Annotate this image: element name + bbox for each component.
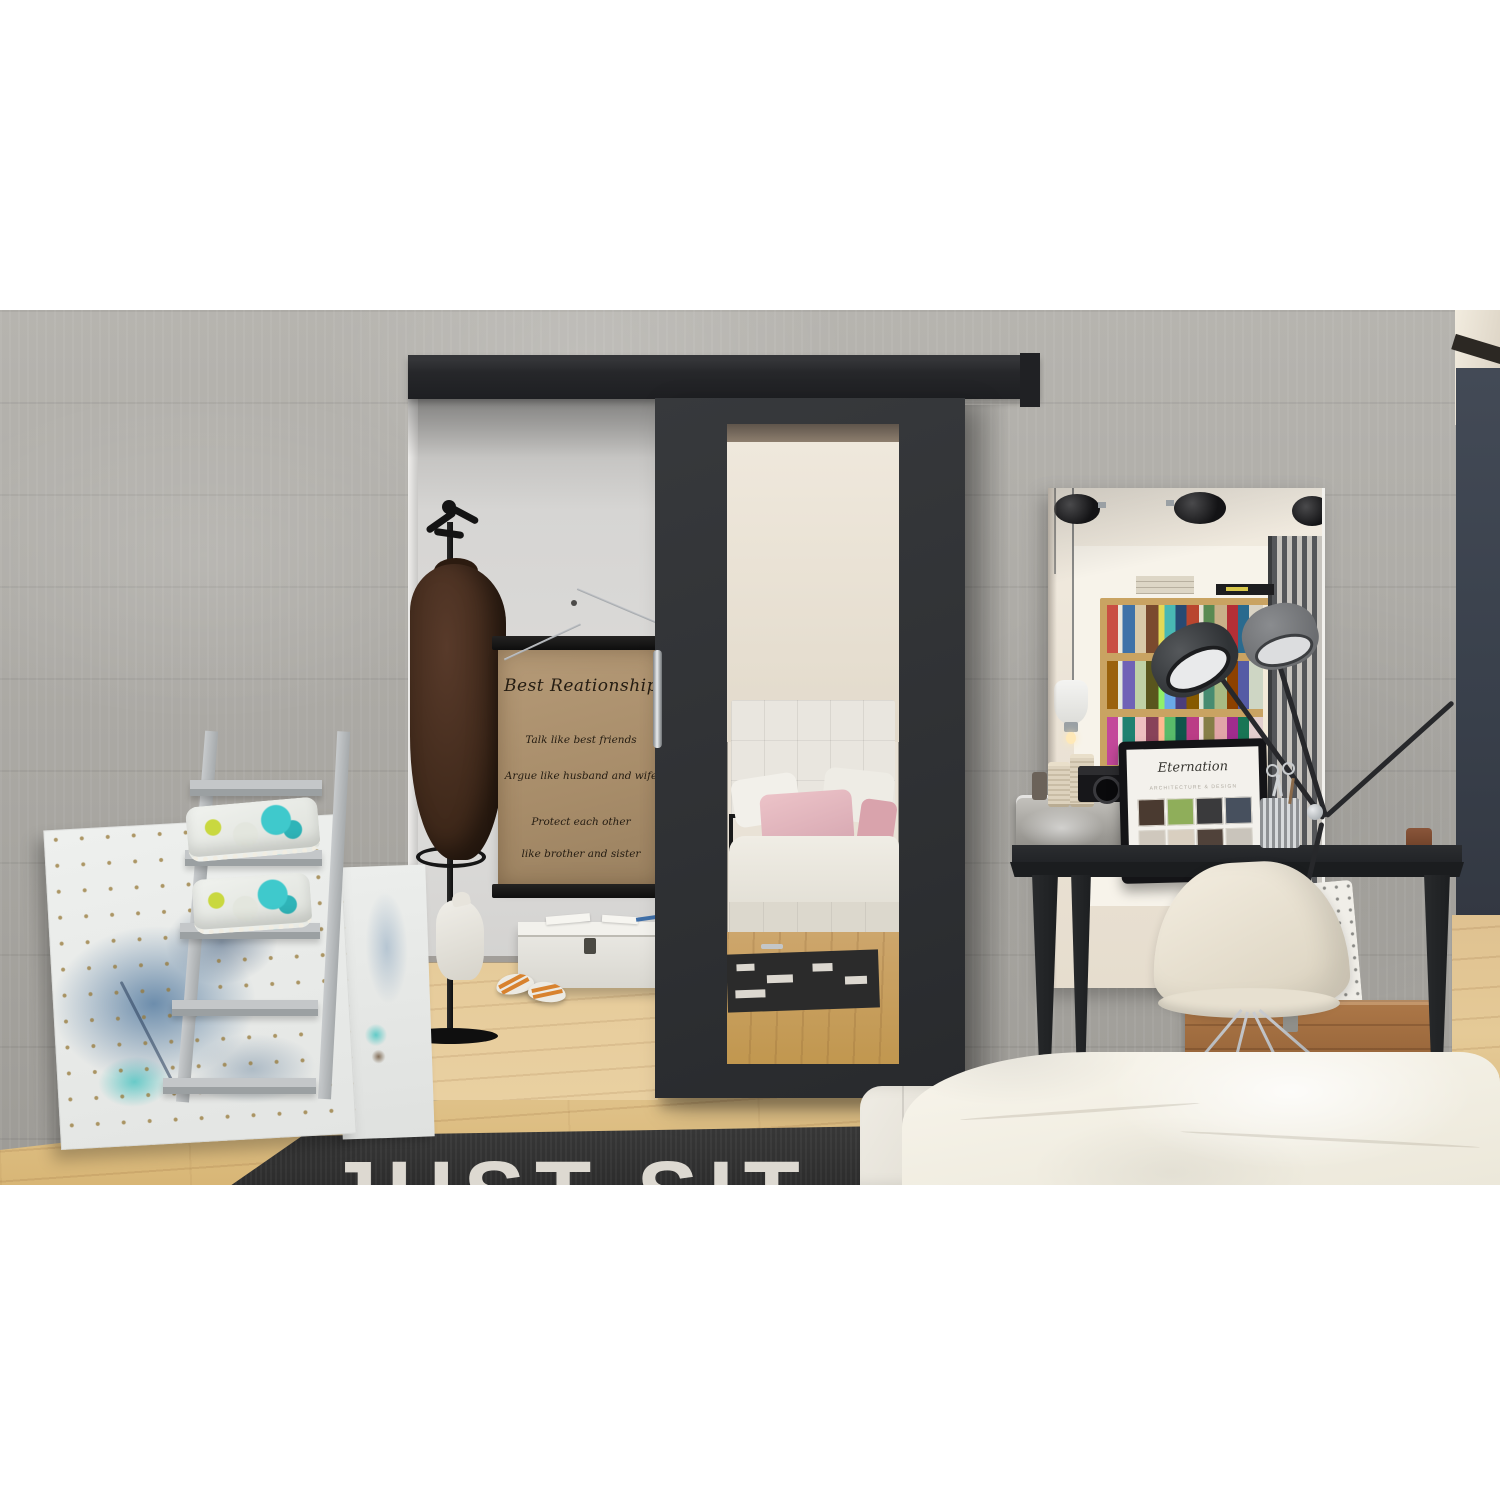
pendant-bulb [1066, 732, 1076, 744]
laundry-bag [436, 900, 484, 980]
poster-wire-right [577, 588, 658, 626]
door-track-end-cap [1020, 353, 1040, 407]
pendant-lamp-fitting [1064, 722, 1078, 732]
far-room-navy-wall [1456, 368, 1500, 923]
scissors-handle [1266, 764, 1279, 777]
ladder-shelf-5 [163, 1078, 316, 1094]
sliding-door [655, 398, 965, 1098]
pendant-lamp-shade [1054, 680, 1088, 724]
book-stack-reflection [1136, 576, 1194, 594]
camera-lens [1093, 776, 1121, 804]
rug-text: JUST SIT [326, 1142, 810, 1185]
mirror-reflection-wall [727, 442, 899, 742]
mirror-reflection-duvet [729, 836, 899, 910]
poster-bottom-rail [492, 884, 658, 898]
spotlight-stem [1166, 500, 1174, 506]
door-mirror [727, 424, 899, 1064]
thread-spool-dark [1032, 772, 1047, 800]
door-handle [653, 650, 662, 748]
tropical-pillow-bottom [191, 872, 313, 935]
poster-line: Talk like best friends [498, 734, 658, 746]
bag-knot [451, 890, 472, 907]
room-photo: JUST SIT Best Reationship Talk like best… [0, 310, 1500, 1185]
thumbnail [1167, 798, 1195, 826]
door-cast-shadow-wall [965, 405, 1011, 1085]
hallway-alcove: Best Reationship Talk like best friends … [408, 398, 658, 1100]
poster-nail [571, 600, 577, 606]
chest-latch [584, 938, 596, 954]
ladder-shelf-1 [190, 780, 322, 796]
black-desk-top [1012, 845, 1462, 862]
lamp-joint [1307, 804, 1323, 820]
brown-jacket [410, 564, 506, 860]
tropical-pillow-top [185, 796, 321, 862]
website-logo: Eternation [1127, 758, 1259, 776]
coat-stand-finial [442, 500, 456, 514]
poster-line: Protect each other [498, 816, 658, 828]
thread-spool [1048, 762, 1070, 807]
spotlight-stem [1098, 502, 1106, 508]
eames-chair-seat [1158, 988, 1340, 1018]
door-track-rail [408, 355, 1040, 399]
shelf-plank [1107, 709, 1263, 717]
paint-stroke [120, 981, 178, 1089]
poster-line: Argue like husband and wife [498, 770, 658, 782]
spotlight-reflection [1292, 496, 1325, 526]
pencil-cup [1260, 798, 1300, 848]
poster-line: like brother and sister [498, 848, 658, 860]
poster-top-rail [492, 636, 658, 650]
poster-title: Best Reationship [498, 676, 658, 696]
mirror-reflection-rug [727, 949, 880, 1012]
thumbnail [1225, 796, 1253, 824]
poster: Best Reationship Talk like best friends … [498, 650, 658, 886]
scissors-handle [1282, 762, 1295, 775]
thumbnail [1196, 797, 1224, 825]
product-photo-page: JUST SIT Best Reationship Talk like best… [0, 0, 1500, 1500]
website-subtitle: ARCHITECTURE & DESIGN [1146, 784, 1241, 792]
spotlight-reflection [1054, 494, 1100, 524]
dark-book-reflection [1216, 584, 1274, 595]
storage-chest [518, 922, 658, 988]
mirror-top-bevel [727, 424, 899, 442]
mirror-reflection-bed-foot [761, 944, 783, 949]
thumbnail [1138, 799, 1166, 827]
ladder-shelf-4 [172, 1000, 318, 1016]
spotlight-reflection [1174, 492, 1226, 524]
alcove-top-shadow [408, 398, 658, 458]
